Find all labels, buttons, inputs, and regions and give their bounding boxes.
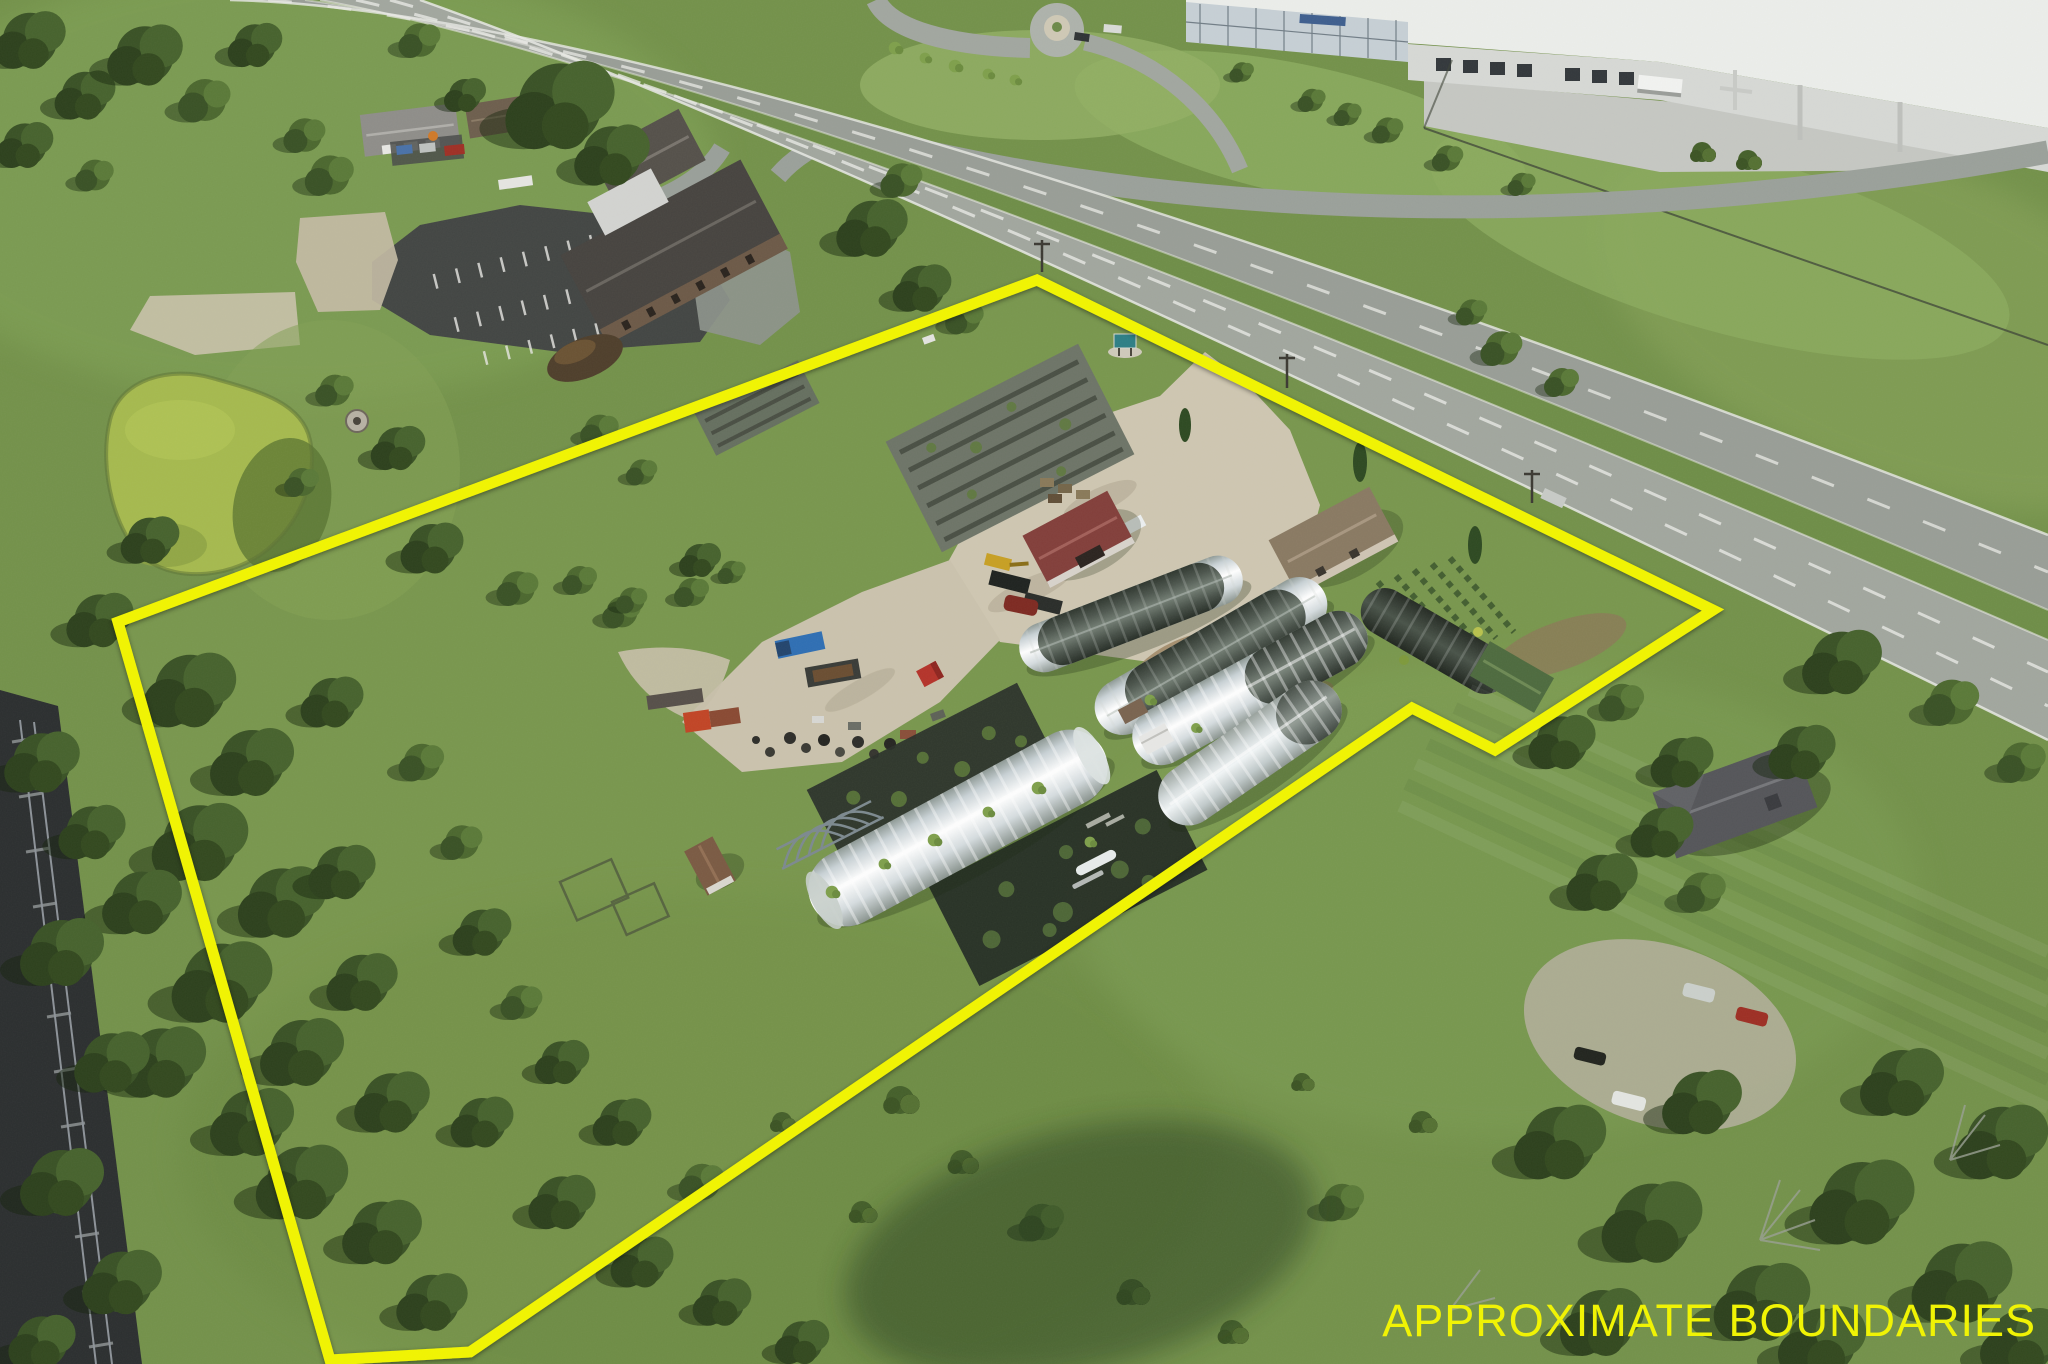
- aerial-photo-canvas: APPROXIMATE BOUNDARIES: [0, 0, 2048, 1364]
- fire-pit: [346, 410, 368, 432]
- aerial-photo: APPROXIMATE BOUNDARIES: [0, 0, 2048, 1364]
- annotation-label: APPROXIMATE BOUNDARIES: [1382, 1295, 2036, 1346]
